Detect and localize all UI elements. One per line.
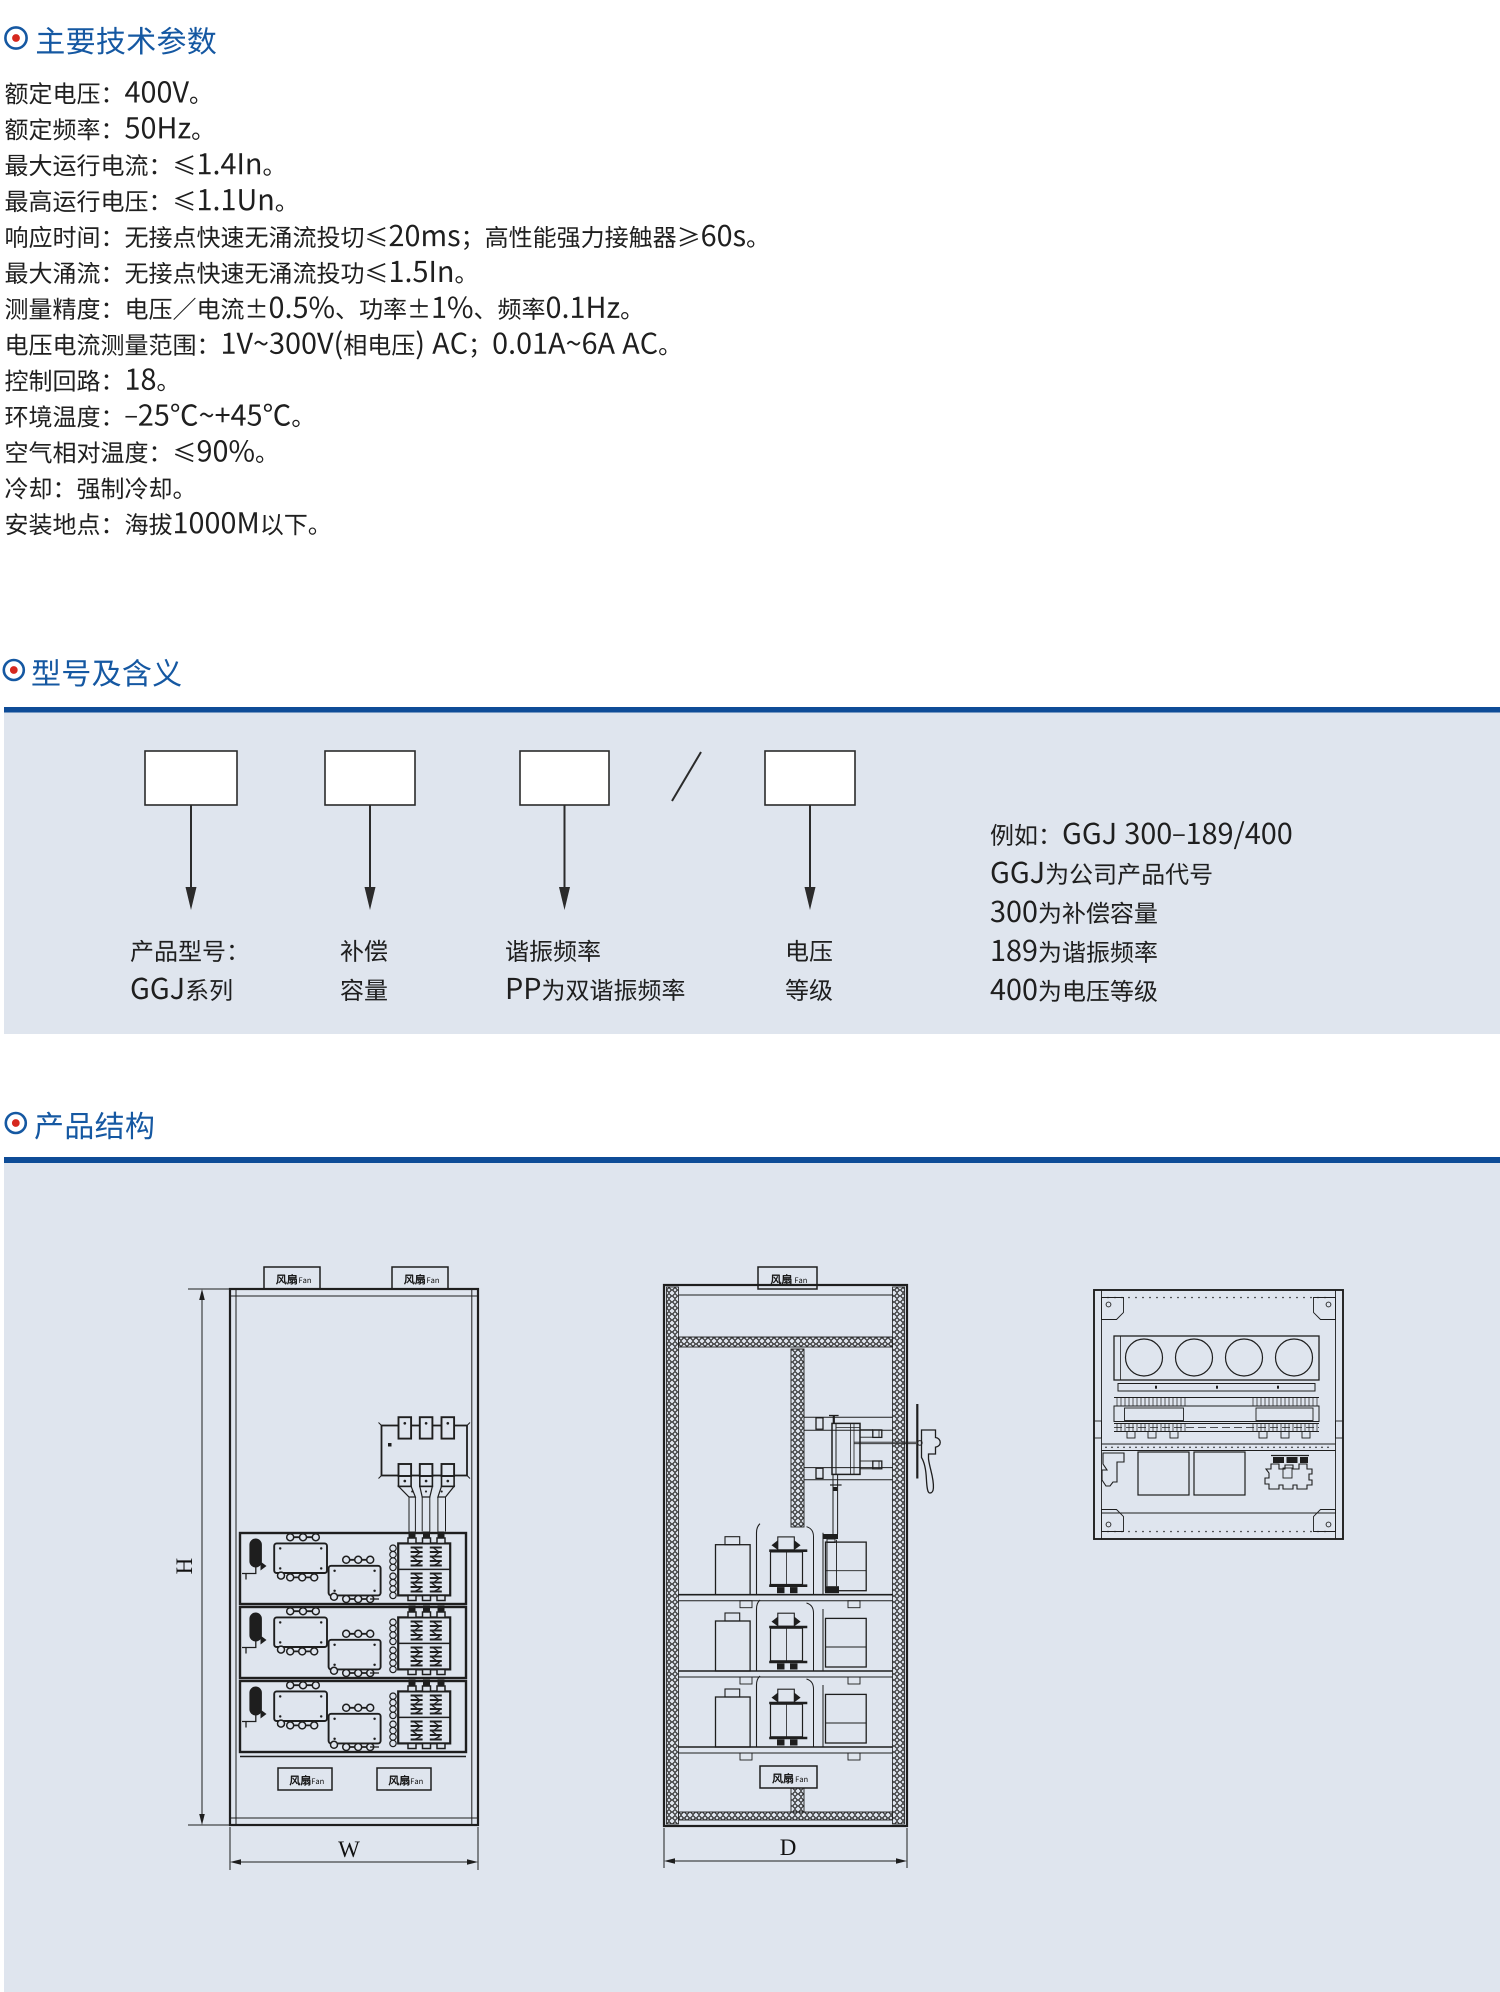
svg-text:D: D: [780, 1835, 797, 1860]
svg-text:W: W: [338, 1837, 360, 1862]
svg-text:H: H: [172, 1558, 197, 1575]
